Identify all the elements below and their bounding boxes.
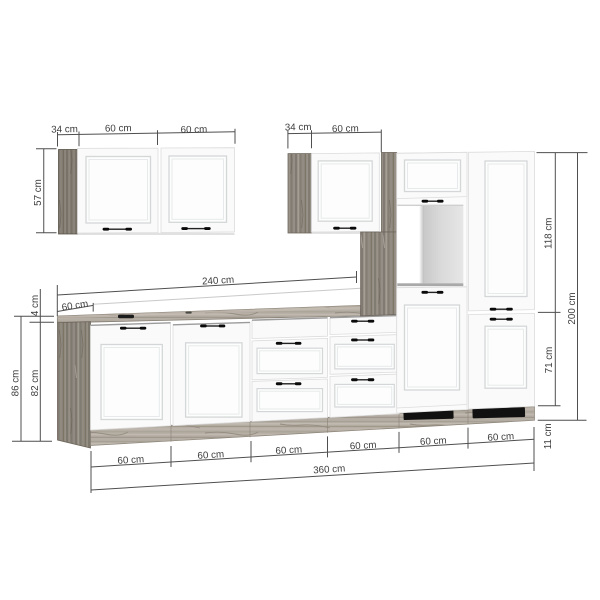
svg-text:60 cm: 60 cm xyxy=(349,440,376,453)
svg-text:360 cm: 360 cm xyxy=(313,463,346,476)
svg-text:60 cm: 60 cm xyxy=(197,449,224,462)
svg-text:60 cm: 60 cm xyxy=(275,444,302,457)
svg-text:200 cm: 200 cm xyxy=(567,292,578,324)
svg-text:34 cm: 34 cm xyxy=(51,124,78,136)
svg-text:71 cm: 71 cm xyxy=(544,347,555,374)
svg-text:57 cm: 57 cm xyxy=(33,179,44,206)
svg-text:60 cm: 60 cm xyxy=(105,123,132,135)
svg-text:60 cm: 60 cm xyxy=(117,454,144,467)
svg-text:60 cm: 60 cm xyxy=(487,431,514,444)
svg-text:240 cm: 240 cm xyxy=(202,275,235,288)
svg-text:34 cm: 34 cm xyxy=(285,122,312,134)
svg-text:118 cm: 118 cm xyxy=(543,218,554,249)
svg-text:11 cm: 11 cm xyxy=(543,423,554,449)
svg-text:86 cm: 86 cm xyxy=(11,370,22,397)
svg-text:60 cm: 60 cm xyxy=(180,124,207,136)
svg-text:82 cm: 82 cm xyxy=(30,370,41,397)
svg-text:60 cm: 60 cm xyxy=(420,435,447,448)
svg-text:60 cm: 60 cm xyxy=(332,123,359,135)
svg-text:4 cm: 4 cm xyxy=(30,295,41,316)
